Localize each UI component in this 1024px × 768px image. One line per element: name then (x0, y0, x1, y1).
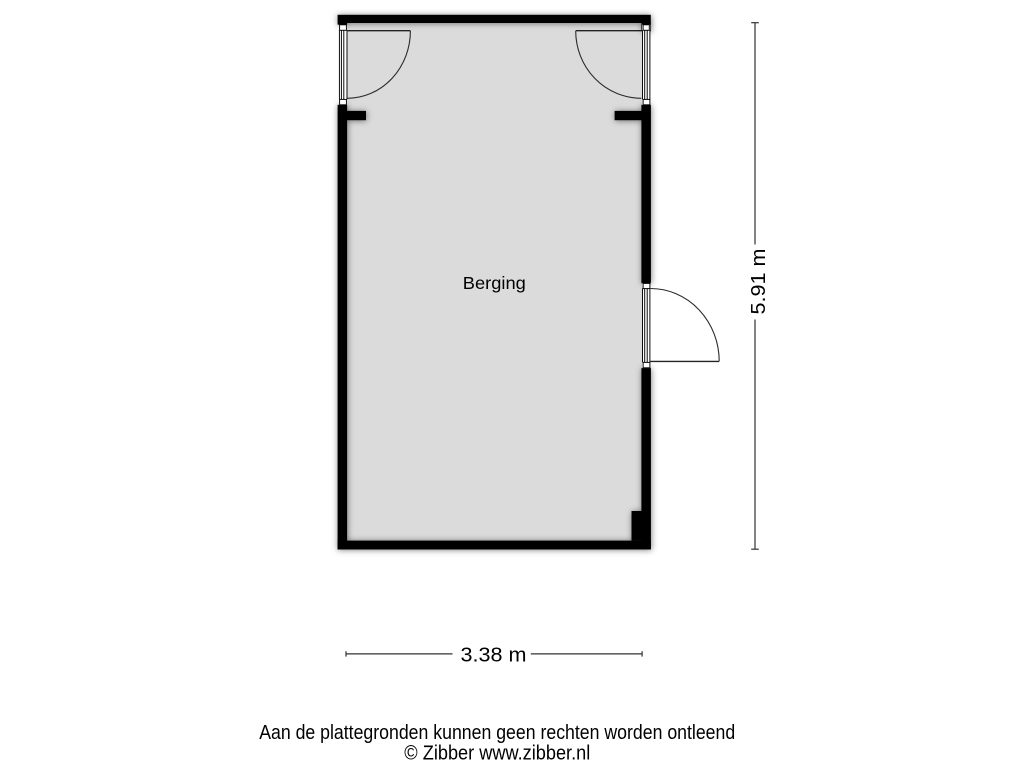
svg-text:Aan de plattegronden kunnen ge: Aan de plattegronden kunnen geen rechten… (259, 722, 735, 744)
svg-text:3.38 m: 3.38 m (461, 644, 527, 666)
svg-text:5.91 m: 5.91 m (748, 249, 770, 315)
svg-text:Berging: Berging (463, 273, 526, 293)
svg-text:© Zibber www.zibber.nl: © Zibber www.zibber.nl (404, 743, 590, 765)
